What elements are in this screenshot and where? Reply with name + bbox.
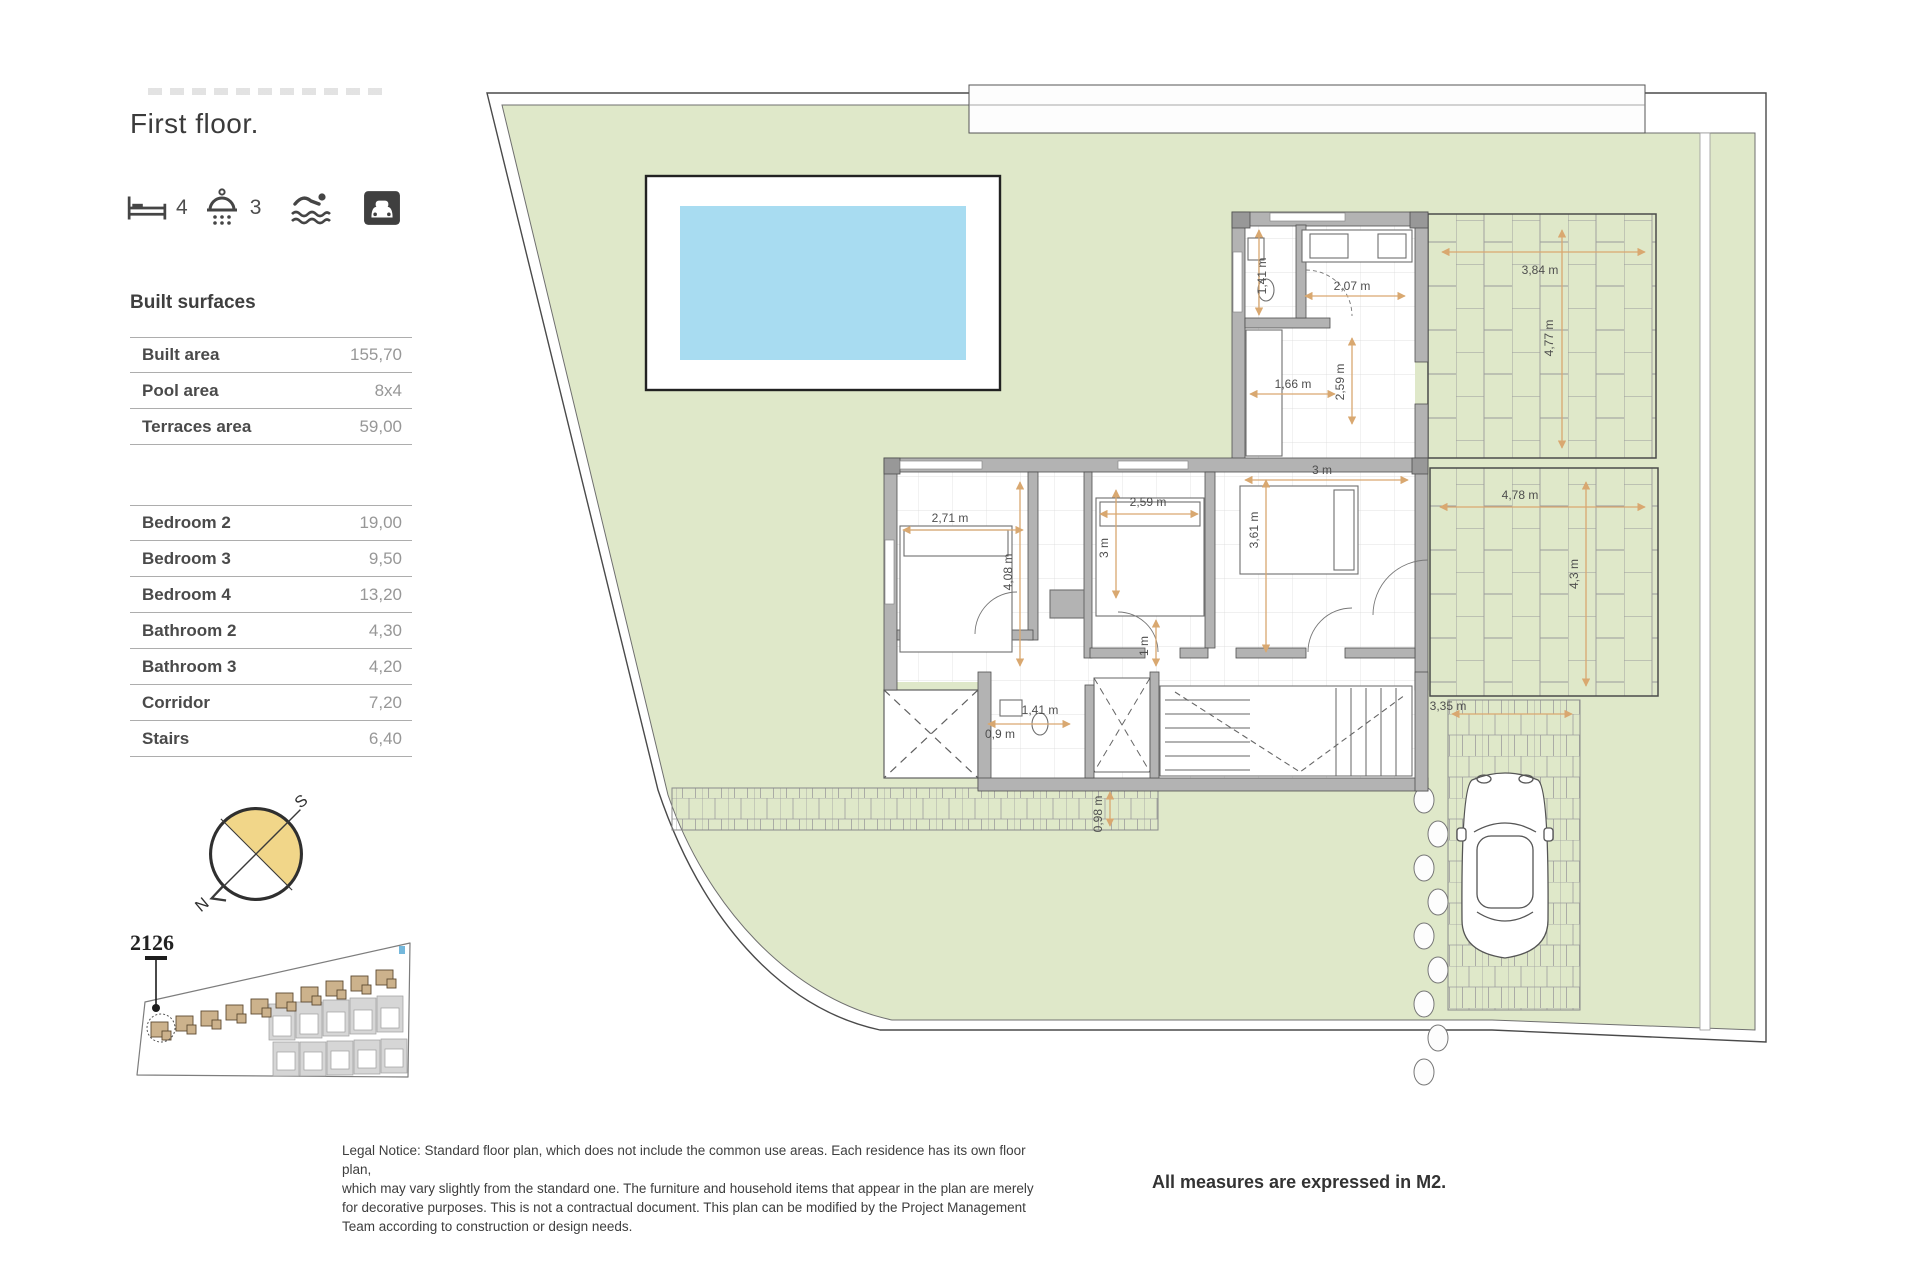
utility-box — [1050, 590, 1084, 618]
dim-label: 3 m — [1312, 463, 1332, 477]
row-label: Built area — [142, 345, 219, 365]
table-row: Bedroom 3 9,50 — [130, 541, 412, 577]
row-value: 7,20 — [369, 693, 402, 713]
bedroom-count: 4 — [176, 196, 188, 220]
legal-notice: Legal Notice: Standard floor plan, which… — [342, 1142, 1048, 1236]
dim-label: 3,35 m — [1430, 699, 1467, 713]
void-square — [1094, 678, 1150, 772]
right-boundary-divider — [1700, 133, 1710, 1030]
row-label: Bedroom 4 — [142, 585, 231, 605]
closet — [1246, 330, 1282, 456]
legal-line: Legal Notice: Standard floor plan, which… — [342, 1142, 1048, 1180]
table-row: Bathroom 2 4,30 — [130, 613, 412, 649]
dim-label: 4,3 m — [1567, 559, 1581, 589]
stairs — [1160, 686, 1412, 776]
shower-icon — [202, 188, 242, 228]
amenity-pool — [289, 188, 333, 228]
row-value: 59,00 — [359, 417, 402, 437]
row-label: Corridor — [142, 693, 210, 713]
row-value: 13,20 — [359, 585, 402, 605]
amenities-row: 4 3 — [126, 188, 401, 228]
table-row: Built area 155,70 — [130, 337, 412, 373]
row-label: Terraces area — [142, 417, 251, 437]
dim-label: 3,84 m — [1522, 263, 1559, 277]
dim-label: 3 m — [1097, 538, 1111, 558]
dim-label: 1 m — [1137, 636, 1151, 656]
rooms-table: Bedroom 2 19,00 Bedroom 3 9,50 Bedroom 4… — [130, 505, 412, 757]
legal-line: which may vary slightly from the standar… — [342, 1180, 1048, 1199]
row-label: Bedroom 2 — [142, 513, 231, 533]
row-label: Bathroom 2 — [142, 621, 236, 641]
amenity-garage — [363, 190, 401, 226]
row-value: 19,00 — [359, 513, 402, 533]
built-surfaces-heading: Built surfaces — [130, 292, 256, 314]
dim-label: 2,07 m — [1334, 279, 1371, 293]
table-row: Bathroom 3 4,20 — [130, 649, 412, 685]
row-value: 8x4 — [375, 381, 402, 401]
bed-bedroom2 — [900, 526, 1012, 652]
terrace-right — [1430, 468, 1658, 696]
built-surfaces-table: Built area 155,70 Pool area 8x4 Terraces… — [130, 337, 412, 445]
dim-label: 1,41 m — [1255, 258, 1269, 295]
legal-line: for decorative purposes. This is not a c… — [342, 1199, 1048, 1218]
site-pool-marker — [399, 946, 405, 954]
table-row: Pool area 8x4 — [130, 373, 412, 409]
dim-label: 2,59 m — [1333, 364, 1347, 401]
neighbour-top-wall — [969, 85, 1645, 133]
row-label: Bathroom 3 — [142, 657, 236, 677]
garage-icon — [363, 190, 401, 226]
compass-north-label: N — [193, 893, 213, 915]
amenity-bedrooms: 4 — [126, 191, 188, 225]
table-row: Bedroom 2 19,00 — [130, 505, 412, 541]
table-row: Stairs 6,40 — [130, 721, 412, 757]
car — [1457, 773, 1553, 958]
site-plan — [123, 940, 423, 1090]
row-label: Pool area — [142, 381, 219, 401]
dim-label: 1,41 m — [1022, 703, 1059, 717]
table-row: Corridor 7,20 — [130, 685, 412, 721]
row-value: 155,70 — [350, 345, 402, 365]
row-label: Stairs — [142, 729, 189, 749]
bed-icon — [126, 191, 168, 225]
compass: S N — [193, 791, 319, 917]
row-value: 4,20 — [369, 657, 402, 677]
swimmer-icon — [289, 188, 333, 228]
dim-label: 0,9 m — [985, 727, 1015, 741]
dim-label: 2,59 m — [1130, 495, 1167, 509]
measures-note: All measures are expressed in M2. — [1152, 1172, 1446, 1193]
pathway — [672, 788, 1158, 830]
row-value: 9,50 — [369, 549, 402, 569]
row-value: 6,40 — [369, 729, 402, 749]
floor-plan-page: 1,41 m 2,07 m 3,84 m 4,77 m 1,66 m 2,59 … — [0, 0, 1920, 1280]
row-value: 4,30 — [369, 621, 402, 641]
dim-label: 1,66 m — [1275, 377, 1312, 391]
table-row: Terraces area 59,00 — [130, 409, 412, 445]
pool — [646, 176, 1000, 390]
legal-line: Team according to construction or design… — [342, 1218, 1048, 1237]
small-terrace — [884, 690, 978, 778]
bed-bedroom3 — [1096, 498, 1204, 616]
dim-label: 2,71 m — [932, 511, 969, 525]
dim-label: 4,08 m — [1001, 554, 1015, 591]
amenity-bathrooms: 3 — [202, 188, 262, 228]
compass-south-label: S — [291, 791, 312, 812]
dim-label: 3,61 m — [1247, 512, 1261, 549]
dim-label: 0,98 m — [1091, 796, 1105, 833]
bathroom-count: 3 — [250, 196, 262, 220]
print-artifact — [148, 88, 388, 95]
page-title: First floor. — [130, 108, 259, 140]
table-row: Bedroom 4 13,20 — [130, 577, 412, 613]
kitchen-counter — [1302, 230, 1412, 262]
row-label: Bedroom 3 — [142, 549, 231, 569]
dim-label: 4,78 m — [1502, 488, 1539, 502]
pool-water — [680, 206, 966, 360]
dim-label: 4,77 m — [1542, 320, 1556, 357]
